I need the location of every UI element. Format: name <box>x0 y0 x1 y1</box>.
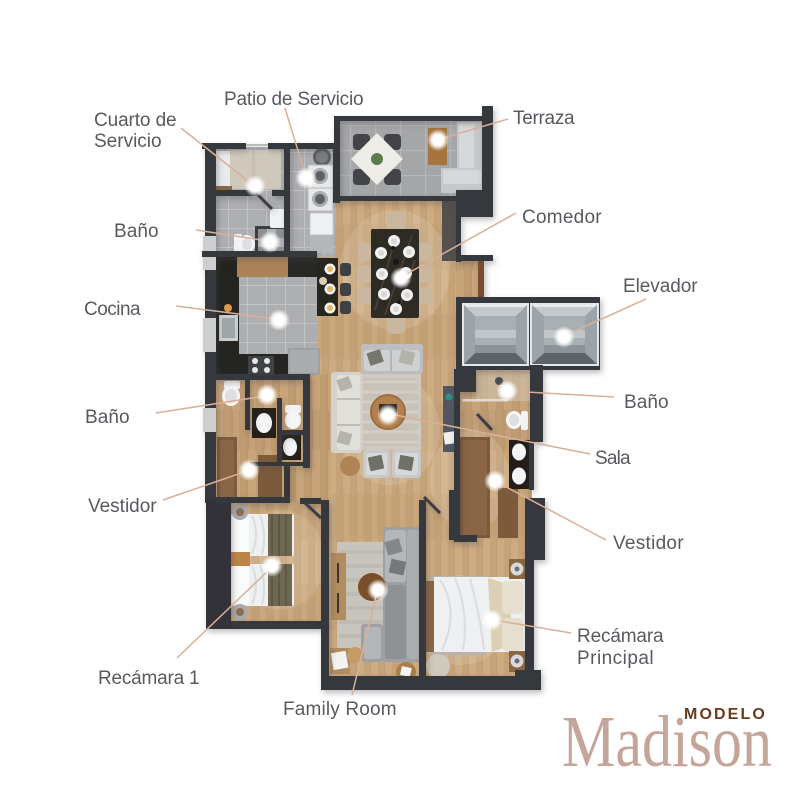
svg-text:Principal: Principal <box>577 648 654 669</box>
svg-text:Servicio: Servicio <box>94 131 162 152</box>
svg-text:Baño: Baño <box>85 407 130 428</box>
svg-text:Vestidor: Vestidor <box>88 496 157 517</box>
svg-text:Recámara 1: Recámara 1 <box>98 668 200 689</box>
svg-text:Sala: Sala <box>595 448 631 469</box>
svg-text:Vestidor: Vestidor <box>613 533 684 554</box>
svg-text:Terraza: Terraza <box>513 108 575 129</box>
svg-text:Cocina: Cocina <box>84 299 141 320</box>
svg-text:Recámara: Recámara <box>577 626 664 647</box>
svg-text:Elevador: Elevador <box>623 276 698 297</box>
svg-text:Patio de Servicio: Patio de Servicio <box>224 89 364 110</box>
svg-text:Comedor: Comedor <box>522 207 602 228</box>
svg-text:Cuarto de: Cuarto de <box>94 110 177 131</box>
svg-text:Baño: Baño <box>624 392 669 413</box>
svg-text:Madison: Madison <box>562 701 772 782</box>
svg-text:Family Room: Family Room <box>283 699 397 720</box>
svg-text:Baño: Baño <box>114 221 159 242</box>
